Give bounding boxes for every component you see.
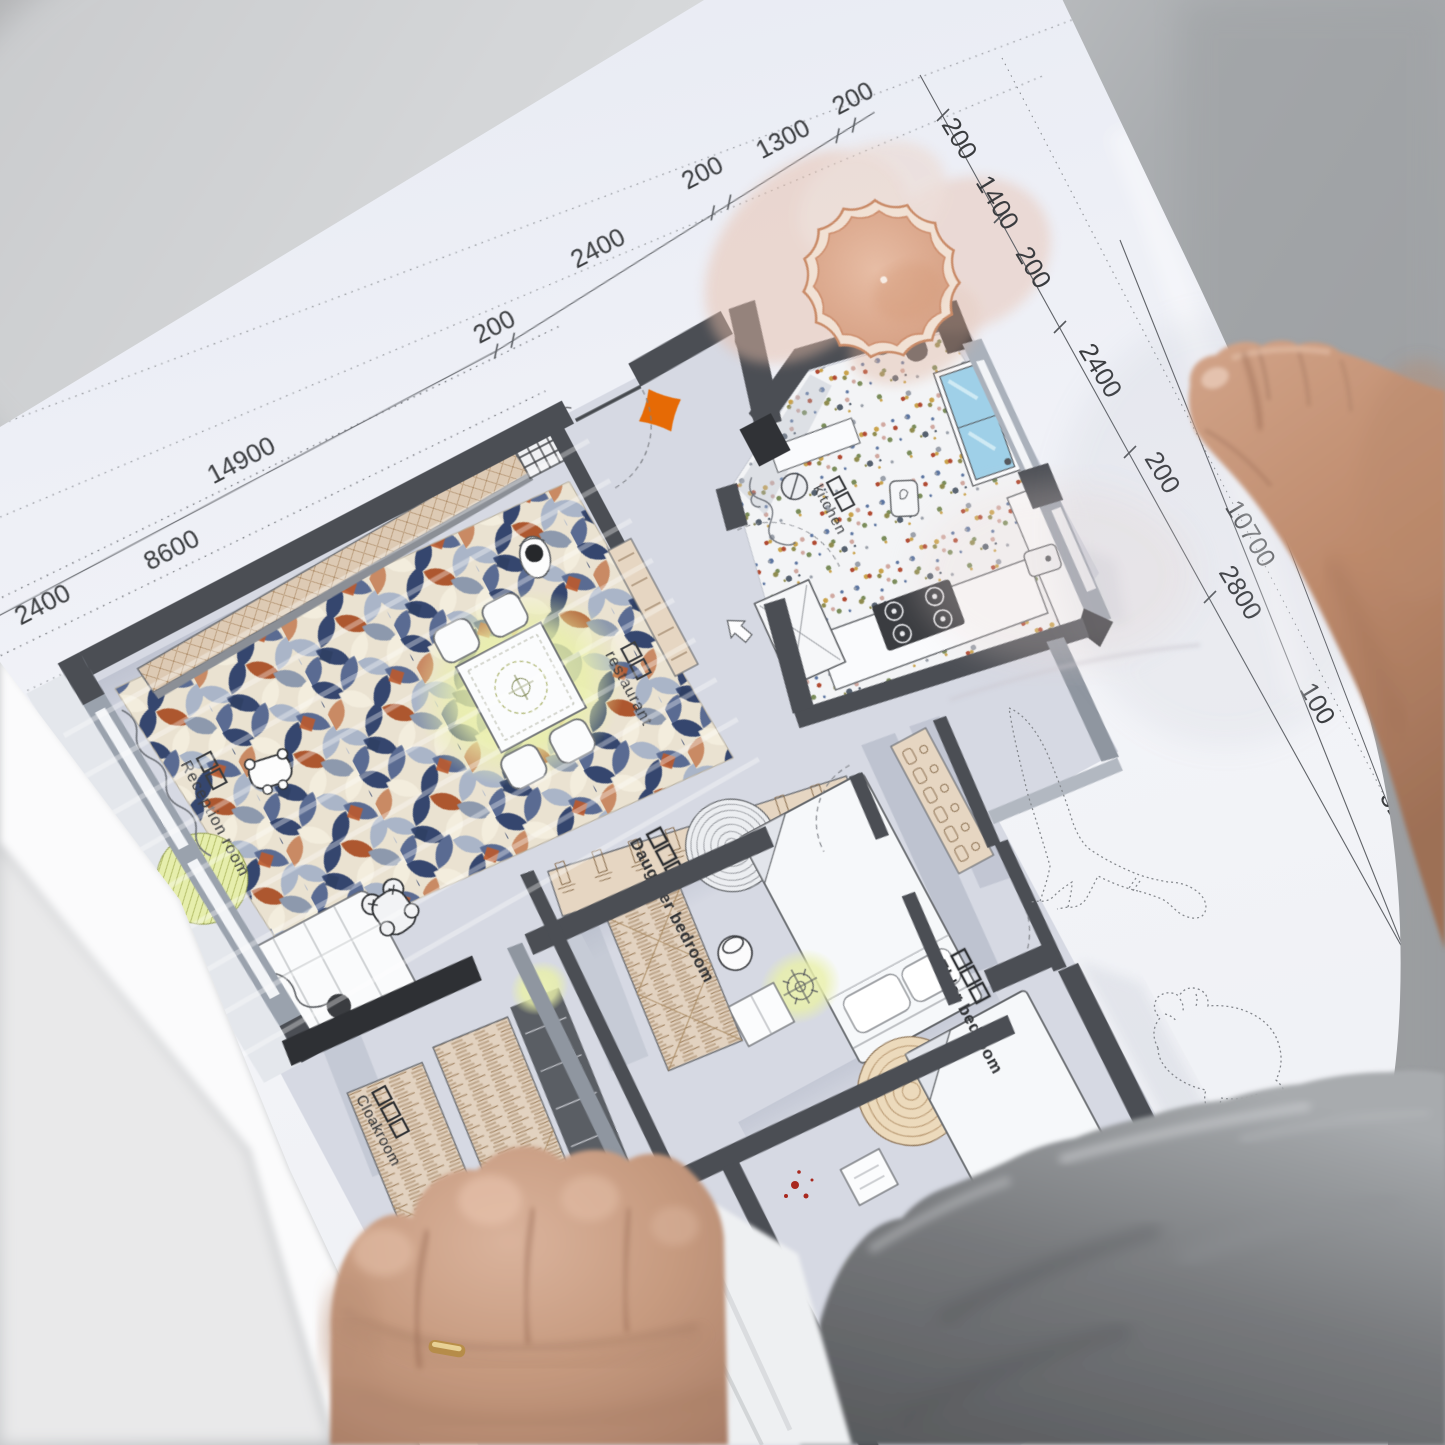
svg-text:200: 200: [936, 112, 984, 165]
svg-text:200: 200: [1010, 241, 1058, 294]
svg-text:1400: 1400: [970, 170, 1026, 235]
